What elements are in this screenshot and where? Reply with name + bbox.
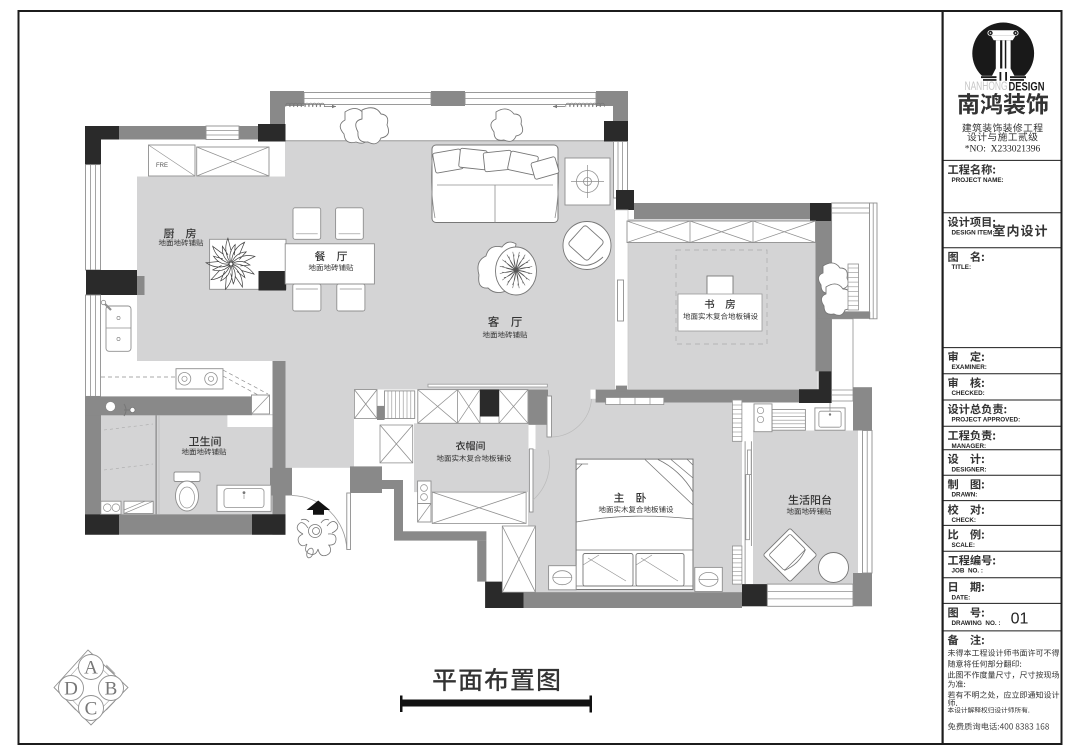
svg-text:TITLE:: TITLE:: [952, 264, 972, 271]
svg-text:NANHONG: NANHONG: [965, 81, 1008, 93]
svg-text:DATE:: DATE:: [952, 594, 971, 601]
svg-text:MANAGER:: MANAGER:: [952, 443, 987, 450]
svg-text:PROJECT NAME:: PROJECT NAME:: [952, 177, 1004, 184]
svg-text:01: 01: [1011, 611, 1029, 628]
svg-text:*NO: X233021396: *NO: X233021396: [965, 145, 1041, 155]
svg-text:EXAMINER:: EXAMINER:: [952, 364, 987, 371]
svg-text:D: D: [64, 679, 78, 700]
svg-text:DESIGNER:: DESIGNER:: [952, 466, 987, 473]
svg-text:CHECK:: CHECK:: [952, 517, 977, 524]
svg-text:B: B: [105, 679, 118, 700]
svg-text:A: A: [84, 658, 98, 679]
svg-text:PROJECT APPROVED:: PROJECT APPROVED:: [952, 417, 1021, 424]
svg-text:JOB NO. :: JOB NO. :: [952, 568, 984, 575]
svg-text:C: C: [85, 699, 98, 720]
svg-text:DRAWN:: DRAWN:: [952, 492, 978, 499]
svg-text:CHECKED:: CHECKED:: [952, 390, 985, 397]
svg-text:DESIGN: DESIGN: [1009, 80, 1045, 94]
svg-text:DRAWING NO. :: DRAWING NO. :: [952, 620, 1001, 627]
svg-text:SCALE:: SCALE:: [952, 542, 975, 549]
svg-text:FRE: FRE: [156, 163, 168, 169]
svg-text:DESIGN ITEM:: DESIGN ITEM:: [952, 229, 995, 236]
